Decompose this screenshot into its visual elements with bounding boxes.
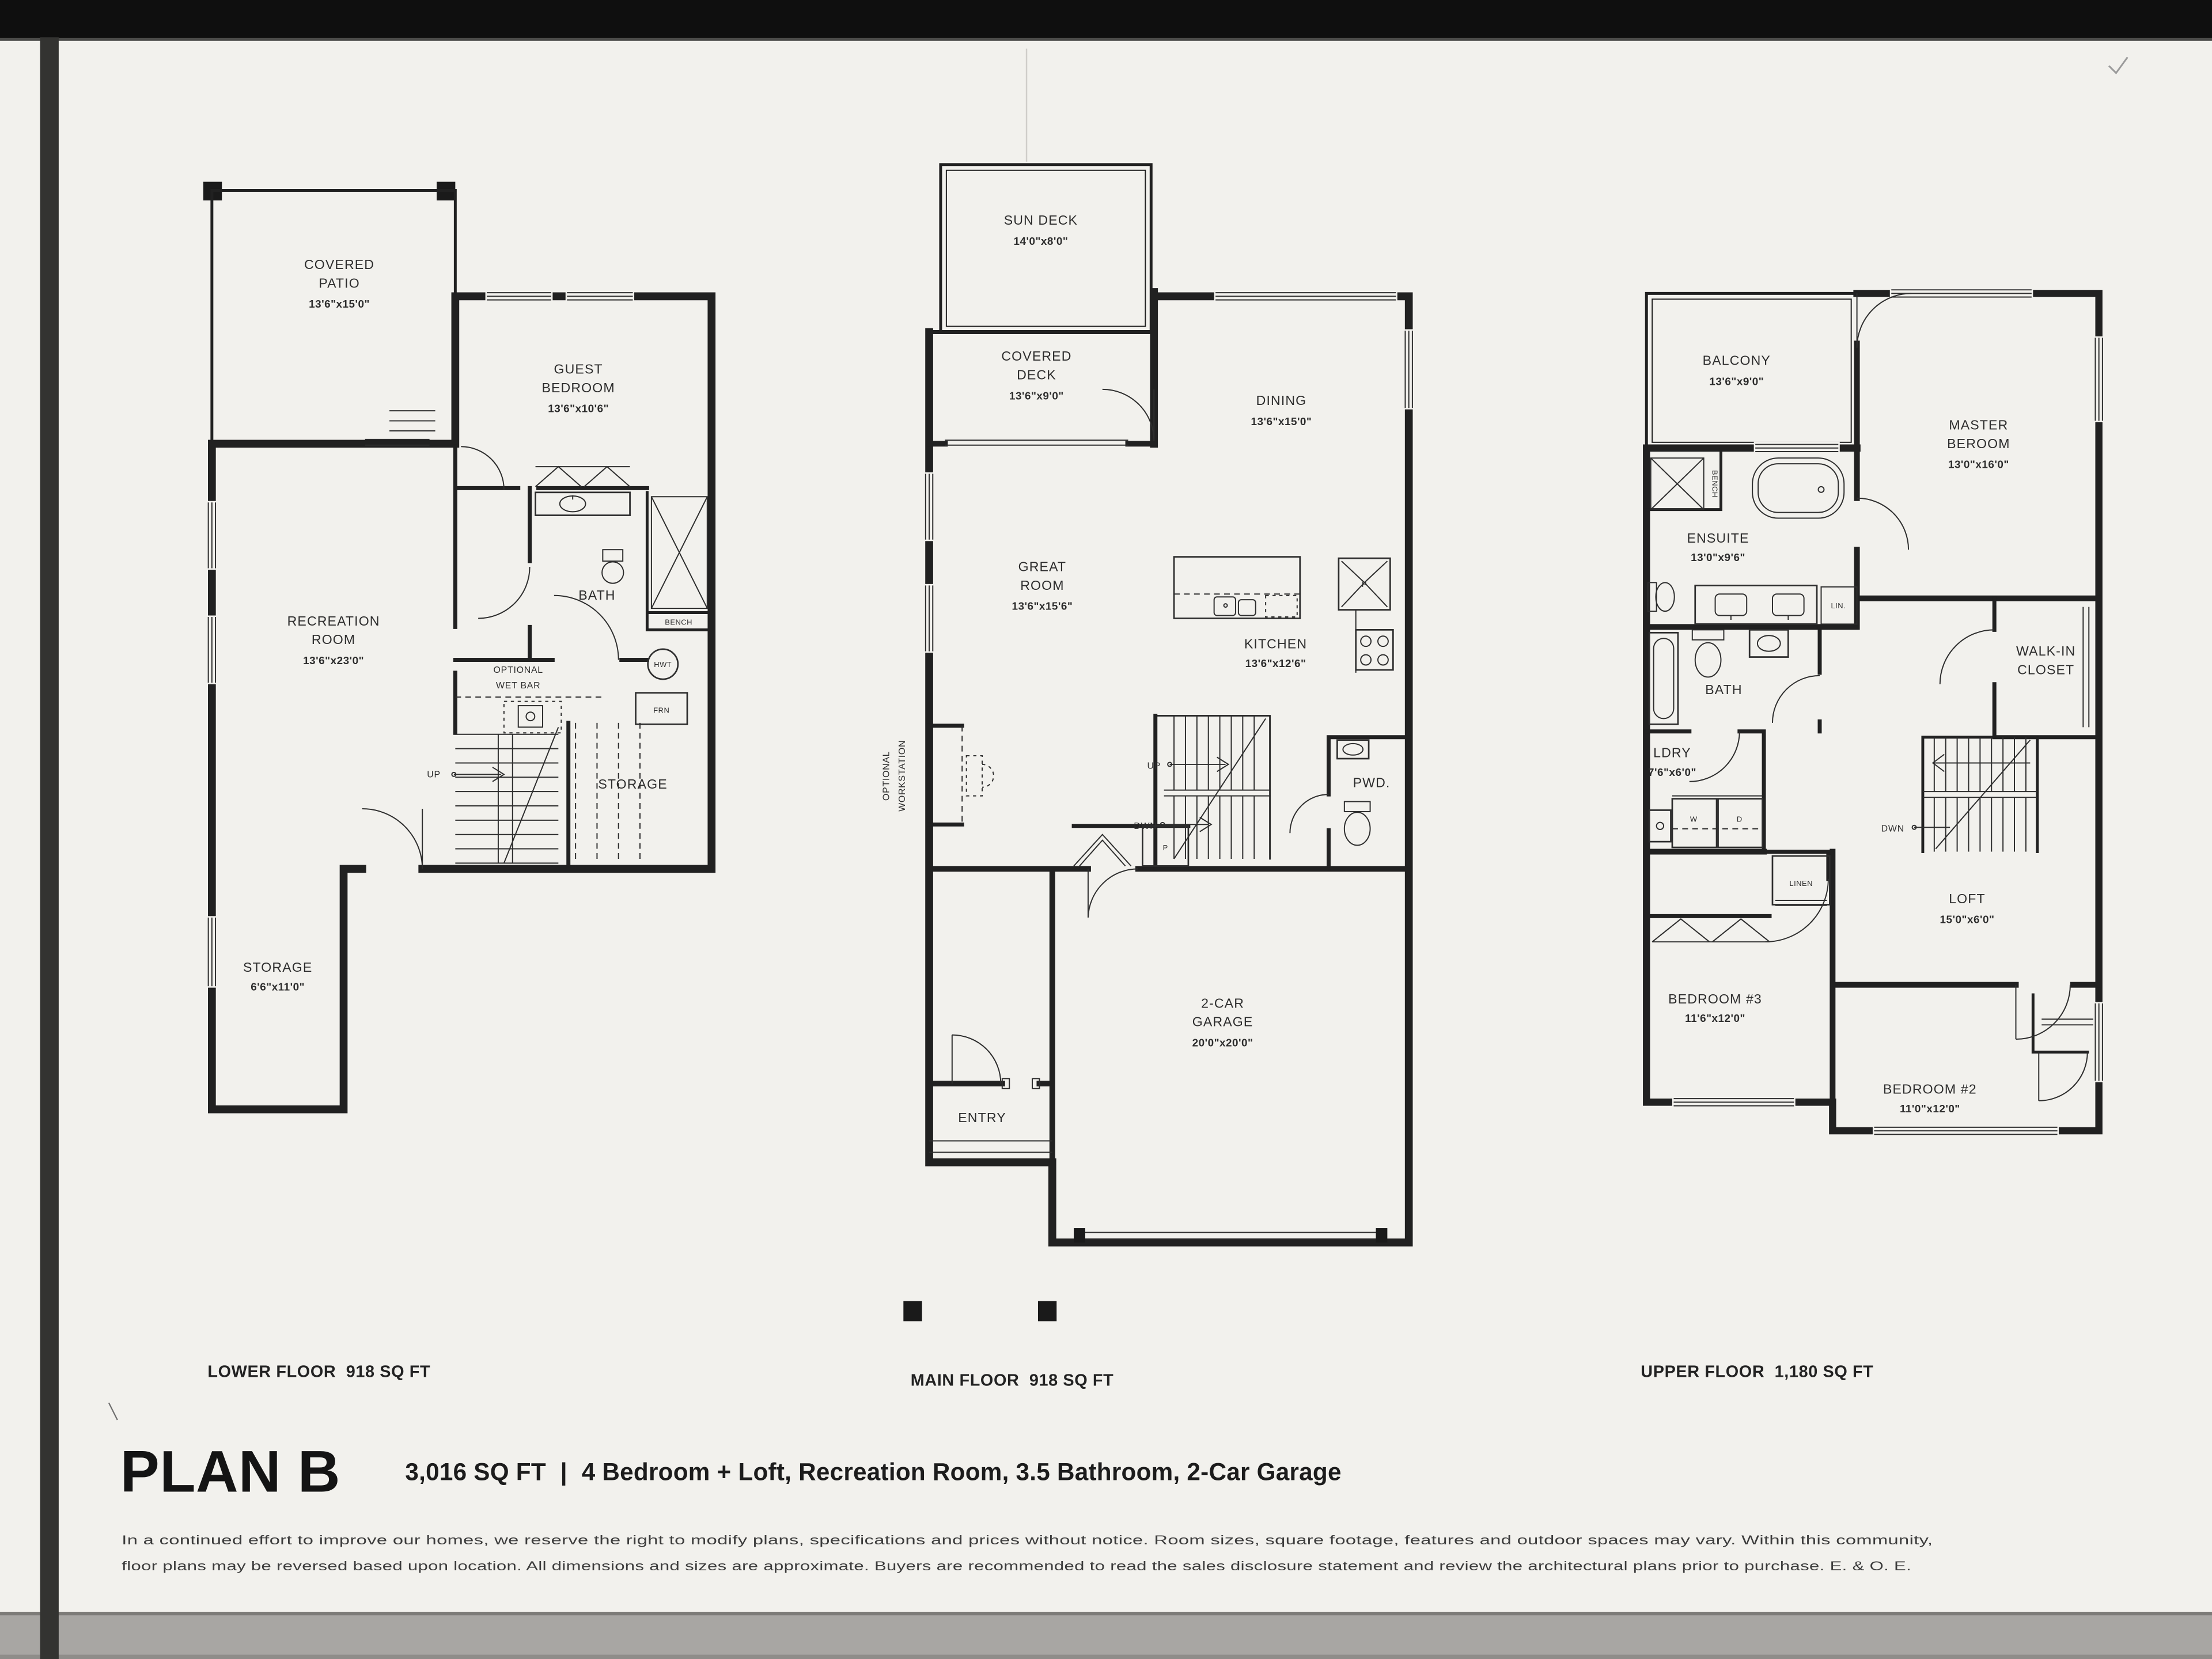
stove-symbol (1356, 610, 1393, 673)
up-label: UP (1147, 761, 1161, 771)
room-dims: 6'6"x11'0" (251, 982, 305, 994)
room-label-storage: STORAGE (598, 777, 667, 791)
upper-floor-plan: BALCONY 13'6"x9'0" MASTER BEROOM 13'0"x1… (1646, 287, 2105, 1137)
room-label-master-bedroom: MASTER BEROOM 13'0"x16'0" (1947, 417, 2010, 471)
room-name: BEDROOM (541, 380, 615, 395)
door-arcs (1690, 293, 2088, 1100)
lower-floor-plan: COVERED PATIO 13'6"x15'0" GUEST BEDROOM … (203, 182, 711, 1109)
room-dims: 13'6"x10'6" (548, 403, 609, 415)
room-label-garage: 2-CAR GARAGE 20'0"x20'0" (1192, 995, 1253, 1049)
dwn-label: DWN (1881, 824, 1904, 834)
caption-area: 918 SQ FT (346, 1362, 431, 1381)
room-dims: 13'0"x16'0" (1948, 459, 2009, 471)
room-name: COVERED (304, 257, 374, 272)
room-name: BALCONY (1703, 353, 1771, 368)
room-name: LDRY (1653, 745, 1691, 760)
room-label-dining: DINING 13'6"x15'0" (1251, 393, 1312, 428)
room-label-laundry: LDRY 7'6"x6'0" (1648, 745, 1696, 779)
room-name: BEDROOM #2 (1883, 1081, 1977, 1096)
scan-check-mark (2109, 57, 2127, 73)
room-dims: 13'6"x15'0" (309, 298, 370, 310)
upper-floor-windows (1672, 287, 2105, 1137)
sun-deck-wall (941, 165, 1151, 332)
wet-bar-symbol (455, 697, 601, 733)
room-dims: 13'0"x9'6" (1691, 552, 1745, 564)
plan-features: 4 Bedroom + Loft, Recreation Room, 3.5 B… (582, 1458, 1342, 1485)
sun-deck-inner-line (946, 171, 1145, 327)
dwn-label: DWN (1134, 821, 1157, 831)
room-name: ENSUITE (1687, 531, 1749, 546)
disclaimer-line2: floor plans may be reversed based upon l… (122, 1559, 1911, 1573)
hwt-label: HWT (654, 660, 672, 669)
scan-left-strip (40, 37, 59, 1659)
room-label-storage-lower: STORAGE 6'6"x11'0" (243, 960, 312, 993)
room-name: MASTER (1949, 417, 2008, 432)
lower-floor-caption: LOWER FLOOR918 SQ FT (207, 1362, 430, 1381)
room-label-kitchen: KITCHEN 13'6"x12'6" (1244, 637, 1307, 670)
room-dims: 13'6"x15'0" (1251, 416, 1312, 428)
sheet-footer: LOWER FLOOR918 SQ FT MAIN FLOOR918 SQ FT… (120, 1301, 1933, 1573)
room-name: WALK-IN (2016, 643, 2075, 658)
room-name: DINING (1256, 393, 1307, 408)
dryer-label: D (1737, 815, 1743, 823)
room-label-guest-bedroom: GUEST BEDROOM 13'6"x10'6" (541, 362, 615, 415)
washer-dryer-symbol (1672, 796, 1763, 847)
scan-top-bar-edge (0, 38, 2212, 41)
room-name: BEDROOM #3 (1668, 991, 1762, 1006)
room-label-bath: BATH (1705, 682, 1742, 697)
workstation-label: OPTIONAL (881, 751, 891, 801)
bench-label: BENCH (665, 618, 692, 627)
toilet-symbol (602, 550, 623, 583)
caption-name: MAIN FLOOR (911, 1371, 1020, 1389)
room-label-covered-deck: COVERED DECK 13'6"x9'0" (1001, 349, 1071, 402)
entry-door-symbol (929, 1035, 1052, 1153)
powder-door-arc (1290, 794, 1328, 833)
post-marker (903, 1301, 922, 1321)
kitchen-island-symbol (1174, 557, 1300, 619)
room-name: RECREATION (287, 613, 380, 628)
room-name: SUN DECK (1004, 213, 1078, 228)
bathtub-symbol (1649, 632, 1678, 724)
room-label-covered-patio: COVERED PATIO 13'6"x15'0" (304, 257, 374, 310)
stairs-symbol (1161, 715, 1270, 858)
stairs-symbol (452, 723, 640, 863)
room-label-bedroom2: BEDROOM #2 11'0"x12'0" (1883, 1081, 1977, 1115)
caption-area: 918 SQ FT (1029, 1371, 1114, 1389)
floor-plan-drawing: COVERED PATIO 13'6"x15'0" GUEST BEDROOM … (0, 0, 2212, 1659)
room-label-sun-deck: SUN DECK 14'0"x8'0" (1004, 213, 1078, 248)
room-dims: 14'0"x8'0" (1013, 236, 1068, 248)
garage-man-door (1088, 869, 1138, 917)
room-dims: 20'0"x20'0" (1192, 1037, 1253, 1049)
room-label-bedroom3: BEDROOM #3 11'6"x12'0" (1668, 991, 1762, 1025)
washer-label: W (1690, 815, 1698, 823)
guest-closet-doors (536, 467, 630, 487)
room-dims: 13'6"x15'6" (1012, 601, 1073, 613)
room-name: ROOM (312, 632, 355, 647)
room-dims: 13'6"x23'0" (303, 655, 364, 667)
room-label-walk-in-closet: WALK-IN CLOSET (2016, 643, 2075, 677)
room-label-recreation-room: RECREATION ROOM 13'6"x23'0" (287, 613, 380, 667)
room-label-powder: PWD. (1353, 775, 1391, 790)
main-floor-windows (923, 290, 1415, 653)
stairs-symbol (1912, 737, 2037, 852)
separator: | (560, 1458, 567, 1486)
room-label-entry: ENTRY (958, 1110, 1006, 1125)
bedroom2-closet-rod (2041, 1019, 2093, 1025)
workstation-label: WORKSTATION (897, 740, 907, 812)
room-name: PATIO (319, 275, 360, 290)
bench-label: BENCH (1711, 470, 1719, 498)
plan-title: PLAN B (120, 1438, 340, 1504)
room-dims: 11'6"x12'0" (1685, 1013, 1745, 1025)
sink-symbol (1749, 630, 1788, 657)
pantry-label: P (1163, 843, 1168, 852)
scan-top-bar (0, 0, 2212, 40)
shower-symbol (652, 497, 707, 608)
room-dims: 13'6"x12'6" (1245, 658, 1306, 670)
room-label-loft: LOFT 15'0"x6'0" (1940, 891, 1995, 926)
linen-label: LINEN (1789, 879, 1813, 888)
room-name: KITCHEN (1244, 637, 1307, 652)
toilet-symbol (1692, 630, 1724, 677)
room-name: GREAT (1018, 559, 1066, 574)
post-marker (1038, 1301, 1056, 1321)
main-floor-plan: SUN DECK 14'0"x8'0" COVERED DECK 13'6"x9… (881, 165, 1415, 1243)
room-name: GUEST (554, 362, 603, 377)
lin-label: LIN. (1831, 601, 1846, 610)
room-label-balcony: BALCONY 13'6"x9'0" (1703, 353, 1771, 388)
bedroom3-closet-doors (1652, 919, 1770, 942)
scan-bottom-strip (0, 1612, 2212, 1659)
room-label-bath: BATH (578, 588, 615, 603)
plan-area: 3,016 SQ FT (405, 1458, 546, 1485)
main-floor-caption: MAIN FLOOR918 SQ FT (911, 1371, 1114, 1389)
pantry-label: P (1362, 580, 1367, 589)
mud-closet-doors (1074, 826, 1188, 866)
frn-label: FRN (653, 706, 669, 714)
scanned-floorplan-sheet: COVERED PATIO 13'6"x15'0" GUEST BEDROOM … (0, 0, 2212, 1659)
room-name: CLOSET (2017, 662, 2074, 677)
plan-summary: 3,016 SQ FT|4 Bedroom + Loft, Recreation… (405, 1458, 1341, 1486)
scan-bottom-edge (0, 1612, 2212, 1615)
room-name: LOFT (1949, 891, 1986, 906)
room-name: ROOM (1020, 578, 1064, 593)
room-dims: 15'0"x6'0" (1940, 914, 1995, 926)
double-vanity-symbol (1695, 585, 1817, 624)
room-dims: 13'6"x9'0" (1009, 390, 1064, 402)
caption-name: UPPER FLOOR (1641, 1362, 1764, 1381)
scan-bottom-edge2 (0, 1655, 2212, 1659)
caption-name: LOWER FLOOR (207, 1362, 336, 1381)
room-name: COVERED (1001, 349, 1071, 363)
toilet-symbol (1648, 582, 1675, 611)
scan-speck (109, 1403, 118, 1420)
patio-steps-symbol (389, 411, 435, 431)
room-label-ensuite: ENSUITE 13'0"x9'6" (1687, 531, 1749, 564)
room-name: GARAGE (1192, 1014, 1253, 1029)
upper-floor-labels: BALCONY 13'6"x9'0" MASTER BEROOM 13'0"x1… (1648, 353, 2075, 1115)
lower-floor-fixtures (362, 411, 707, 869)
wet-bar-label: WET BAR (496, 681, 540, 691)
wet-bar-label: OPTIONAL (494, 665, 543, 675)
upper-floor-caption: UPPER FLOOR1,180 SQ FT (1641, 1362, 1873, 1381)
room-dims: 11'0"x12'0" (1900, 1103, 1960, 1115)
room-name: 2-CAR (1201, 995, 1244, 1010)
powder-room-fixtures (1337, 740, 1370, 846)
walk-in-shelving (2083, 607, 2089, 728)
main-floor-labels: SUN DECK 14'0"x8'0" COVERED DECK 13'6"x9… (881, 213, 1390, 1125)
disclaimer-line1: In a continued effort to improve our hom… (122, 1533, 1933, 1547)
scan-artifacts (0, 0, 2212, 1659)
laundry-sink-symbol (1649, 810, 1671, 842)
caption-area: 1,180 SQ FT (1775, 1362, 1874, 1381)
room-name: STORAGE (243, 960, 312, 975)
shower-symbol (1651, 458, 1704, 509)
bathtub-symbol (1752, 458, 1844, 518)
room-dims: 13'6"x9'0" (1709, 376, 1764, 388)
room-label-great-room: GREAT ROOM 13'6"x15'6" (1012, 559, 1073, 612)
up-label: UP (427, 770, 441, 779)
workstation-symbol (962, 726, 994, 824)
room-name: BEROOM (1947, 436, 2010, 451)
room-dims: 7'6"x6'0" (1648, 767, 1696, 779)
lower-floor-labels: COVERED PATIO 13'6"x15'0" GUEST BEDROOM … (243, 257, 692, 993)
vanity-sink-symbol (536, 493, 630, 516)
room-name: DECK (1017, 368, 1056, 382)
